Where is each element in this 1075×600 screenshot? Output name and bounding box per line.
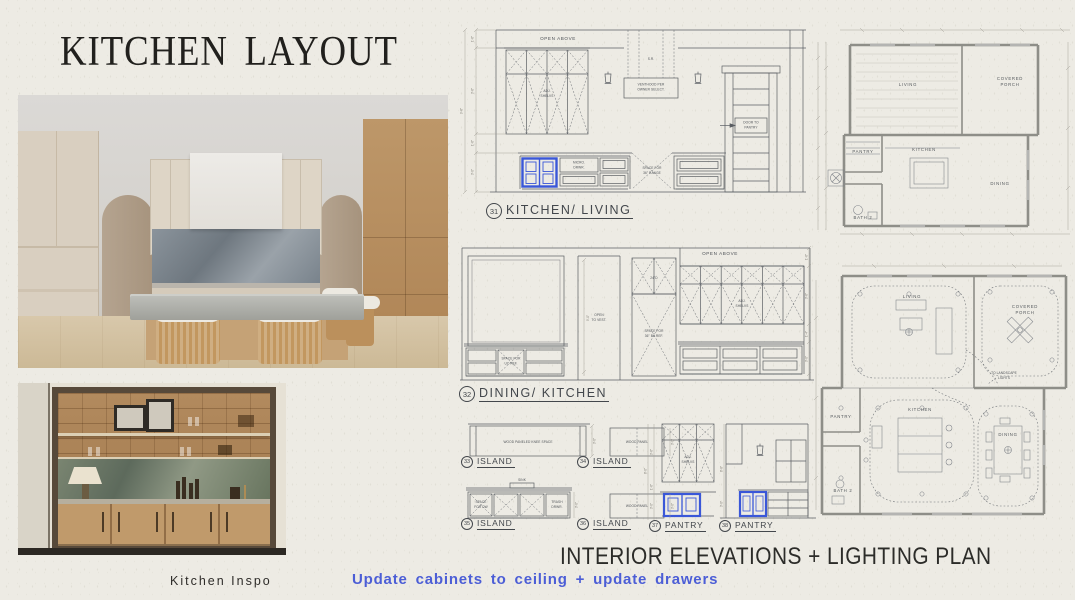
open-vest-note: TO VEST.	[592, 318, 607, 322]
dim-label: 1'-6"	[471, 36, 475, 42]
photo-dark-floor	[18, 548, 286, 555]
dw-note: SPACE	[475, 500, 486, 504]
plan-ceiling-joists	[856, 54, 958, 126]
footer-heading: INTERIOR ELEVATIONS + LIGHTING PLAN	[560, 543, 992, 571]
floor-plan-drawing: LIVING COVERED PORCH PANTRY KITCHEN DINI…	[810, 20, 1075, 240]
adj-shelves-note: SHELVS	[682, 460, 695, 464]
micro-drawer-note: DRWR.	[573, 166, 584, 170]
dim-label: 3'-6"	[471, 88, 475, 94]
ref-space-note: SPACE FOR	[644, 329, 664, 333]
plan-dimension-lines	[816, 28, 1070, 236]
room-label-bath: BATH 2	[834, 488, 853, 493]
island-note: WOOD PANELED KNEE SPACE	[503, 440, 552, 444]
sconce-icon	[757, 444, 764, 456]
lplan-circuit-loops	[852, 286, 1058, 506]
dim-label: 8'-0"	[644, 468, 648, 474]
dim-label: 1'-6"	[471, 140, 475, 146]
adj-shelves-note: ADJ.	[543, 89, 550, 93]
room-label-porch: COVERED	[1012, 304, 1038, 309]
photo-caption: Kitchen Inspo	[170, 574, 272, 588]
adj-shelves-note: SHELVS	[541, 94, 554, 98]
pantry-highlight-cabinets	[664, 492, 766, 516]
photo-bar-niche	[52, 387, 276, 550]
adj-shelves-note: ADJ.	[738, 299, 745, 303]
adj-shelves-note: ADJ.	[684, 455, 691, 459]
venthood-note: OWNER SELECT.	[637, 88, 664, 92]
elevation-31-label: 31 KITCHEN/ LIVING	[486, 203, 633, 219]
page-title: KITCHEN LAYOUT	[60, 26, 398, 75]
pantry-37-label: 37PANTRY	[649, 520, 706, 532]
dim-label: 9'-0"	[586, 315, 590, 321]
dim-label: 3'-6"	[650, 449, 654, 455]
ref-space-note: 36" BI/ REF.	[645, 334, 663, 338]
depth-note: 24"D	[650, 276, 658, 280]
drawing-number-badge: 32	[459, 386, 475, 402]
room-label-living: LIVING	[903, 294, 921, 299]
ucref-note: UC REF.	[504, 362, 517, 366]
dw-note: FOR DW	[474, 505, 488, 509]
lighting-plan-drawing: LIVING COVERED PORCH PANTRY KITCHEN DINI…	[812, 260, 1075, 532]
photo-range-hood	[190, 153, 282, 229]
kitchen-inspo-photo	[18, 95, 448, 368]
dim-label: 3'-0"	[671, 439, 675, 445]
ucref-note: SPACE FOR	[501, 357, 521, 361]
room-label-porch: COVERED	[997, 76, 1023, 81]
room-label-porch: PORCH	[1000, 82, 1019, 87]
room-label-porch: PORCH	[1015, 310, 1034, 315]
elev31-highlight-cabinet	[523, 159, 557, 187]
sr-note: S.R.	[648, 57, 655, 61]
photo-island	[130, 294, 364, 368]
island-35-label: 35ISLAND	[461, 518, 515, 530]
pantry-38-label: 38PANTRY	[719, 520, 776, 532]
lplan-interior-walls	[822, 276, 974, 514]
open-vest-note: OPEN	[594, 313, 604, 317]
landscape-lights-note: TO LANDSCAPE	[991, 371, 1017, 375]
dim-label: 3'-0"	[671, 503, 675, 509]
photo-door-frame	[18, 383, 50, 555]
room-label-bath: BATH 2	[854, 215, 873, 220]
landscape-lights-note: LIGHTS	[998, 376, 1010, 380]
room-label-dining: DINING	[990, 181, 1009, 186]
room-label-pantry: PANTRY	[852, 149, 873, 154]
plan-fixtures	[828, 142, 960, 219]
open-above-note: OPEN ABOVE	[702, 251, 738, 256]
dim-label: 1'-4"	[805, 331, 809, 337]
trash-note: DRWR.	[551, 505, 562, 509]
sink-note: SINK	[518, 478, 527, 482]
adj-shelves-note: SHELVS	[736, 304, 749, 308]
dim-label: 1'-6"	[650, 484, 654, 490]
door-pantry-note: PANTRY	[744, 126, 758, 130]
venthood-note: VENTHOOD PER	[638, 83, 665, 87]
dim-label: 3'-0"	[720, 501, 724, 507]
micro-drawer-note: MICRO.	[573, 161, 585, 165]
room-label-pantry: PANTRY	[830, 414, 851, 419]
room-label-kitchen: KITCHEN	[908, 407, 932, 412]
island-33-label: 33ISLAND	[461, 456, 515, 468]
ceiling-fan-icon	[1007, 317, 1033, 343]
dim-label: 3'-0"	[471, 169, 475, 175]
elevation-32-label: 32 DINING/ KITCHEN	[459, 386, 609, 402]
lplan-furniture	[832, 300, 1030, 504]
room-label-living: LIVING	[899, 82, 917, 87]
trash-note: TRASH	[551, 500, 563, 504]
lplan-chandeliers	[906, 329, 1012, 454]
dim-label: 1'-6"	[805, 254, 809, 260]
pantry-38	[720, 424, 816, 518]
dim-label: 3'-0"	[593, 438, 597, 444]
kitchen-layout-slide: KITCHEN LAYOUT	[0, 0, 1075, 600]
elevation-32-drawing: OPEN ABOVE OPEN TO VEST. 9'-0" 24"D SPAC…	[458, 240, 814, 386]
dim-label: 9'-6"	[460, 108, 464, 114]
island-36-label: 36ISLAND	[577, 518, 631, 530]
bar-inspo-photo	[18, 383, 286, 555]
island-note: WOOD PANEL	[626, 504, 648, 508]
dim-label: 3'-0"	[805, 356, 809, 362]
range-space-note: 36" RANGE	[643, 171, 661, 175]
elevation-31-drawing: 1'-6" 3'-6" 9'-6" 1'-6" 3'-0" OPEN ABOVE…	[458, 22, 806, 204]
photo-backsplash	[152, 229, 320, 285]
open-above-note: OPEN ABOVE	[540, 36, 576, 41]
annotation-note: Update cabinets to ceiling + update draw…	[352, 571, 718, 588]
dim-label: 3'-0"	[650, 503, 654, 509]
room-label-kitchen: KITCHEN	[912, 147, 936, 152]
island-34-label: 34ISLAND	[577, 456, 631, 468]
room-label-dining: DINING	[998, 432, 1017, 437]
dim-label: 3'-6"	[805, 293, 809, 299]
door-pantry-note: DOOR TO	[743, 121, 759, 125]
range-space-note: SPACE FOR	[642, 166, 662, 170]
dim-label: 3'-0"	[575, 502, 579, 508]
dim-label: 8'-0"	[720, 466, 724, 472]
drawing-number-badge: 31	[486, 203, 502, 219]
island-note: WOOD PANEL	[626, 440, 648, 444]
